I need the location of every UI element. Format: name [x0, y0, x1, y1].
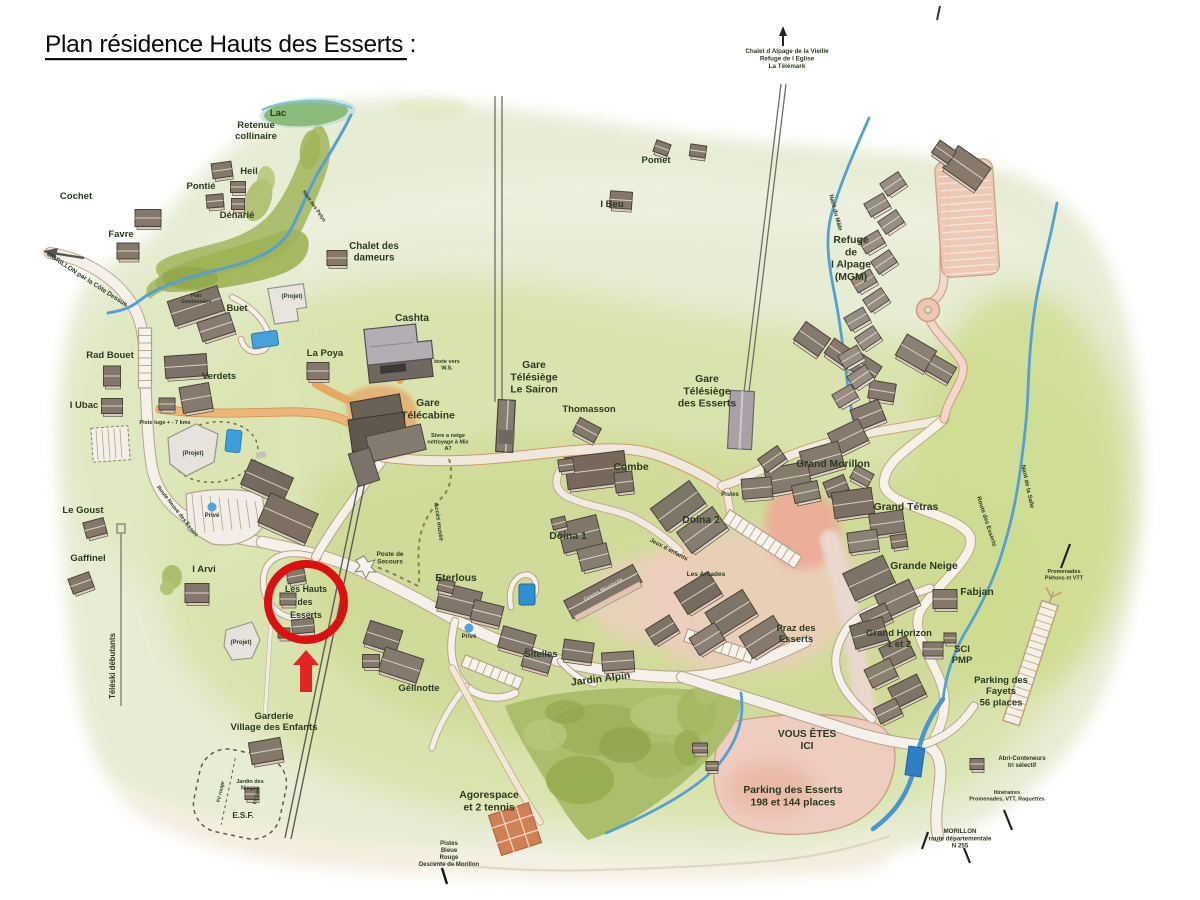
svg-text:des Esserts: des Esserts: [678, 399, 737, 410]
svg-text:texte vers: texte vers: [434, 359, 460, 365]
svg-text:Doina 1: Doina 1: [549, 531, 587, 542]
svg-text:(Projet): (Projet): [231, 640, 252, 646]
svg-text:Buet: Buet: [226, 303, 248, 314]
svg-text:nettoyage à Mix: nettoyage à Mix: [427, 440, 469, 446]
svg-text:E.S.F.: E.S.F.: [232, 811, 253, 820]
svg-text:SCI: SCI: [954, 644, 970, 655]
svg-text:Jardin des: Jardin des: [236, 779, 264, 785]
svg-text:Sivre a neige: Sivre a neige: [431, 433, 465, 439]
svg-text:Les Arcades: Les Arcades: [687, 571, 726, 578]
svg-text:Sitelles: Sitelles: [524, 649, 557, 660]
svg-text:Rouge: Rouge: [440, 855, 459, 861]
svg-text:Fayets: Fayets: [986, 686, 1016, 697]
svg-text:Télécabine: Télécabine: [401, 410, 455, 421]
svg-text:Fabjan: Fabjan: [960, 587, 994, 598]
svg-text:Eterlous: Eterlous: [435, 573, 477, 584]
svg-text:La Poya: La Poya: [307, 348, 344, 359]
svg-text:Retenue: Retenue: [237, 120, 274, 131]
svg-text:(MGM): (MGM): [835, 272, 867, 283]
svg-text:Secours: Secours: [377, 559, 403, 566]
svg-text:Télésiège: Télésiège: [683, 386, 731, 397]
svg-text:Le Sairon: Le Sairon: [510, 385, 557, 396]
svg-text:Heil: Heil: [240, 166, 257, 177]
svg-text:Cashta: Cashta: [395, 313, 429, 324]
svg-text:Gare: Gare: [522, 360, 546, 371]
svg-text:Abri-Conteneurs: Abri-Conteneurs: [998, 756, 1046, 762]
svg-text:Lac: Lac: [270, 108, 286, 119]
svg-text:Esserts: Esserts: [779, 634, 813, 645]
svg-text:Favre: Favre: [108, 229, 133, 240]
svg-text:Piétons et VTT: Piétons et VTT: [1045, 576, 1084, 582]
svg-text:Promenades, VTT, Raquettes: Promenades, VTT, Raquettes: [969, 797, 1045, 803]
svg-text:W.S.: W.S.: [441, 366, 453, 372]
svg-text:Dénarié: Dénarié: [220, 210, 255, 221]
svg-text:Plan résidence Hauts des Esser: Plan résidence Hauts des Esserts :: [45, 31, 416, 58]
svg-text:Téléski débutants: Téléski débutants: [108, 632, 117, 699]
svg-text:(Projet): (Projet): [282, 294, 303, 300]
svg-text:VOUS ÊTES: VOUS ÊTES: [778, 727, 837, 740]
svg-text:Garderie: Garderie: [254, 711, 293, 722]
svg-text:Combe: Combe: [613, 462, 648, 473]
svg-text:Les Hauts: Les Hauts: [285, 584, 327, 594]
svg-text:Gélinotte: Gélinotte: [398, 683, 439, 694]
svg-text:Privé: Privé: [462, 634, 477, 640]
svg-text:Chalet des: Chalet des: [349, 241, 399, 252]
svg-text:Descente de Morillon: Descente de Morillon: [419, 862, 480, 868]
svg-text:I Beu: I Beu: [600, 199, 623, 210]
svg-text:Esserts: Esserts: [290, 610, 322, 620]
svg-text:Chalet d Alpage de la Vieille: Chalet d Alpage de la Vieille: [745, 48, 829, 55]
svg-text:N 255: N 255: [952, 843, 969, 850]
svg-text:route départementale: route départementale: [929, 835, 992, 842]
svg-text:ICI: ICI: [800, 741, 813, 752]
svg-text:dameurs: dameurs: [354, 253, 395, 264]
svg-text:Gaffinel: Gaffinel: [70, 553, 105, 564]
svg-text:Télésiège: Télésiège: [510, 372, 558, 383]
svg-text:Cochet: Cochet: [60, 191, 93, 202]
svg-text:56 places: 56 places: [980, 697, 1023, 708]
svg-text:La Télémark: La Télémark: [769, 63, 806, 70]
svg-text:et 2 tennis: et 2 tennis: [463, 802, 515, 813]
svg-text:Doina 2: Doina 2: [682, 515, 720, 526]
svg-text:Grande Neige: Grande Neige: [890, 561, 958, 572]
svg-text:Itinéraires: Itinéraires: [994, 790, 1020, 796]
svg-text:Grand Tétras: Grand Tétras: [874, 502, 939, 513]
svg-text:Pontié: Pontié: [186, 181, 215, 192]
svg-text:Bleue: Bleue: [441, 848, 458, 854]
svg-text:1 et 2: 1 et 2: [887, 639, 911, 650]
svg-text:Refuge de l Eglise: Refuge de l Eglise: [760, 55, 815, 62]
svg-text:I Alpage: I Alpage: [831, 260, 871, 271]
svg-text:Promenades: Promenades: [1047, 569, 1080, 575]
svg-text:Poste de: Poste de: [376, 551, 403, 558]
svg-text:Pistes: Pistes: [721, 492, 739, 498]
svg-text:Verdets: Verdets: [202, 371, 236, 382]
svg-text:Refuge: Refuge: [833, 235, 868, 246]
svg-text:Pistes: Pistes: [440, 841, 458, 847]
svg-text:Parking des: Parking des: [974, 675, 1028, 686]
svg-text:I Arvi: I Arvi: [192, 564, 215, 575]
svg-text:Thomasson: Thomasson: [562, 404, 616, 415]
svg-text:MORILLON: MORILLON: [944, 828, 978, 835]
svg-text:Le Goust: Le Goust: [62, 505, 104, 516]
svg-text:tri sélectif: tri sélectif: [1008, 763, 1037, 769]
svg-text:Piste luge + - 7 kms: Piste luge + - 7 kms: [139, 420, 190, 426]
svg-text:de: de: [845, 247, 857, 258]
svg-text:Praz des: Praz des: [776, 623, 815, 634]
svg-text:Grand Horizon: Grand Horizon: [866, 628, 932, 639]
svg-text:(Projet): (Projet): [183, 451, 204, 457]
svg-text:Village des Enfants: Village des Enfants: [231, 722, 318, 733]
svg-text:198 et 144 places: 198 et 144 places: [751, 797, 836, 808]
svg-text:A7: A7: [444, 446, 451, 452]
svg-text:Privé: Privé: [205, 513, 220, 519]
svg-text:Pomet: Pomet: [641, 155, 671, 166]
svg-text:Gestionnaire: Gestionnaire: [181, 299, 212, 305]
svg-text:Gare: Gare: [416, 398, 440, 409]
svg-text:Grand Morillon: Grand Morillon: [796, 459, 870, 470]
svg-text:Rad Bouet: Rad Bouet: [86, 350, 134, 361]
svg-text:I Ubac: I Ubac: [70, 400, 99, 411]
svg-text:collinaire: collinaire: [235, 131, 277, 142]
svg-text:Agorespace: Agorespace: [459, 790, 519, 801]
svg-text:Gare: Gare: [695, 374, 719, 385]
svg-text:des: des: [297, 597, 312, 607]
svg-text:PMP: PMP: [952, 655, 973, 666]
svg-text:Parking des Esserts: Parking des Esserts: [743, 785, 843, 796]
